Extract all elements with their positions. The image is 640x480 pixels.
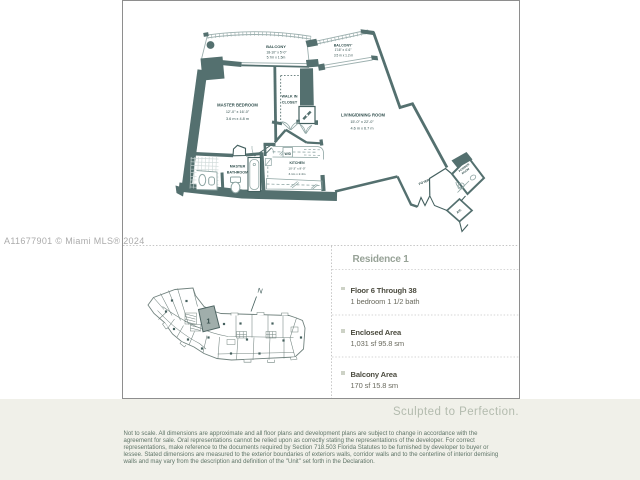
svg-text:W/D: W/D [285,152,292,156]
svg-text:MASTER BEDROOM: MASTER BEDROOM [217,103,258,108]
svg-text:BALCONY': BALCONY' [334,43,353,47]
svg-text:WALK IN: WALK IN [281,95,297,99]
svg-text:5.7m x 1.5m: 5.7m x 1.5m [267,56,286,60]
svg-text:1'16" x 4'-6": 1'16" x 4'-6" [335,48,352,52]
svg-text:N: N [257,288,264,296]
svg-text:18-10" x 5'-0": 18-10" x 5'-0" [266,50,287,54]
svg-text:BATHROOM: BATHROOM [227,171,248,175]
svg-text:4.6 m x 6.7 m: 4.6 m x 6.7 m [350,127,373,131]
svg-text:3.6 m x 4.8 m: 3.6 m x 4.8 m [226,117,249,121]
svg-text:1: 1 [206,317,210,326]
svg-text:MASTER: MASTER [230,165,246,169]
svg-text:3.5 m x 1.2 m: 3.5 m x 1.2 m [334,53,354,57]
svg-text:CLOSET: CLOSET [282,101,298,105]
svg-text:LIVING/DINING ROOM: LIVING/DINING ROOM [341,113,385,118]
svg-text:12'-0" x 16'-0": 12'-0" x 16'-0" [226,110,250,114]
svg-text:10'-3" x 8'-0": 10'-3" x 8'-0" [288,167,305,171]
svg-text:15'-0" x 22'-0": 15'-0" x 22'-0" [350,120,374,124]
svg-text:FOYER: FOYER [418,178,431,186]
svg-text:KITCHEN: KITCHEN [289,161,305,165]
svg-text:3.1m x 2.4m: 3.1m x 2.4m [288,172,305,176]
svg-text:BALCONY: BALCONY [266,44,286,49]
